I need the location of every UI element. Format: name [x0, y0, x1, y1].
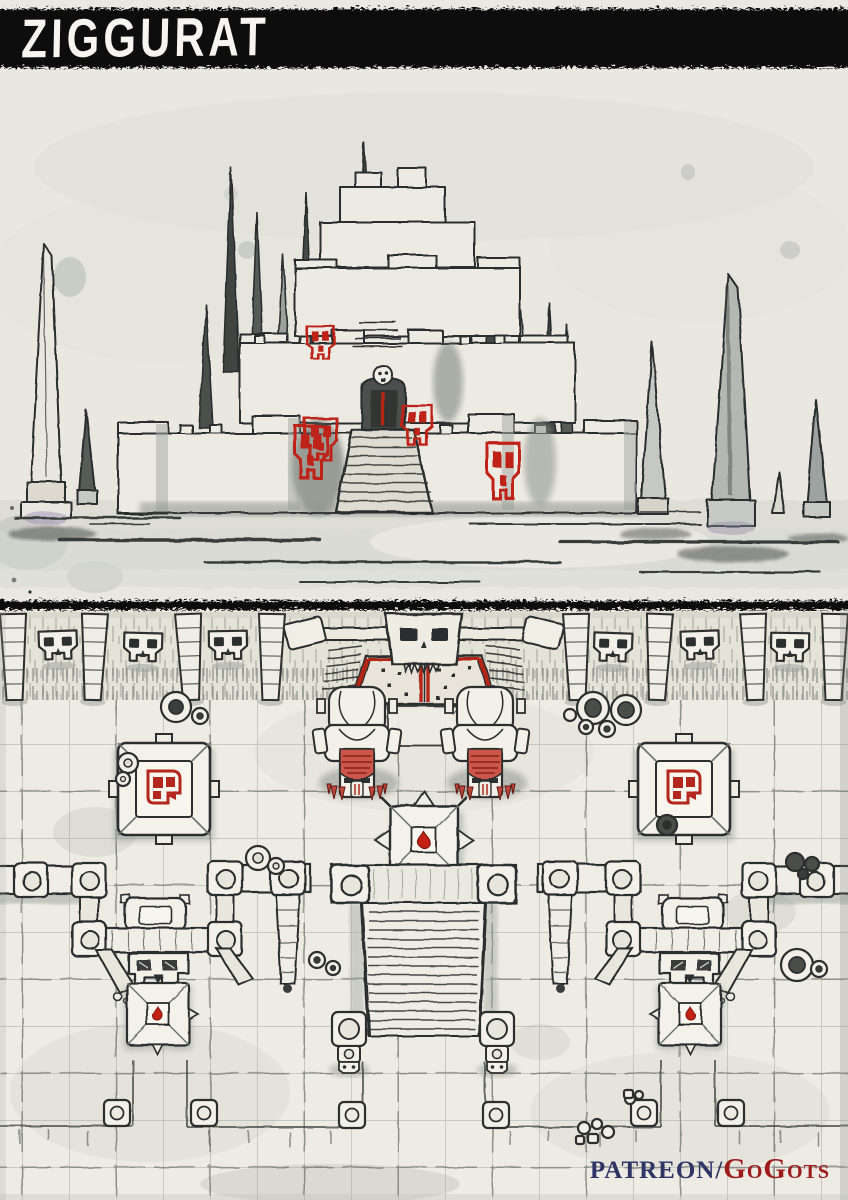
- panel-divider: [0, 597, 848, 612]
- guardian-statue: [440, 687, 529, 800]
- page-title: ZIGGURAT: [21, 6, 271, 71]
- skull-relief: [593, 632, 632, 672]
- floor-marker: [104, 1100, 130, 1126]
- guardian-post: [477, 1012, 517, 1077]
- floor-marker: [191, 1100, 217, 1126]
- battle-map-panel: [0, 612, 848, 1200]
- grand-staircase: [350, 903, 498, 1036]
- ziggurat-illustration-panel: [0, 72, 848, 597]
- skull-relief: [771, 633, 810, 673]
- shrine-skull-face: [128, 953, 188, 985]
- credit-line: PATREON/GoGots: [590, 1153, 830, 1186]
- floor-marker: [339, 1102, 365, 1128]
- credit-author: GoGots: [723, 1153, 830, 1185]
- skull-relief: [680, 630, 719, 670]
- skull-altar: [629, 734, 739, 844]
- guardian-statue: [312, 687, 401, 800]
- hanging-pillar: [276, 894, 300, 984]
- tier-2: [240, 343, 575, 423]
- floor-marker: [631, 1100, 657, 1126]
- skull-relief: [123, 633, 162, 673]
- skull-relief: [38, 630, 77, 670]
- top-cap: [340, 187, 445, 225]
- floor-marker: [483, 1102, 509, 1128]
- stair-platform: [331, 865, 516, 903]
- title-bar: ZIGGURAT: [0, 0, 848, 72]
- skull-lintel: [386, 614, 462, 664]
- skull-keystone: [374, 366, 393, 385]
- credit-site: PATREON/: [590, 1157, 723, 1184]
- skull-relief: [209, 631, 248, 671]
- skull-altar: [109, 734, 219, 844]
- floor-marker: [718, 1100, 744, 1126]
- ziggurat-artwork-page: ZIGGURAT: [0, 0, 848, 1200]
